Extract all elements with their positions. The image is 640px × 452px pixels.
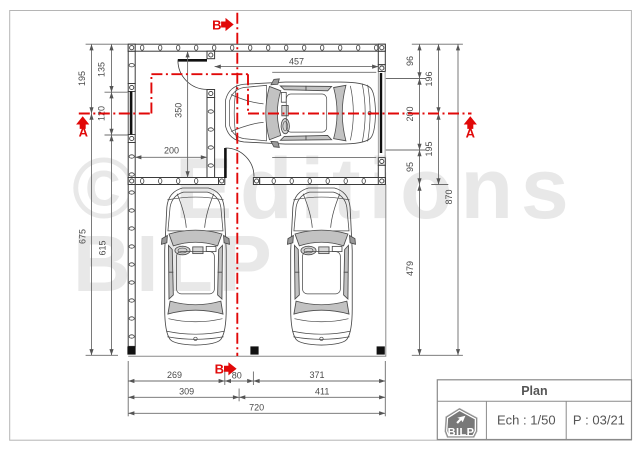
svg-text:615: 615 [98, 240, 108, 255]
svg-text:675: 675 [78, 229, 88, 244]
svg-text:Ech : 1/50: Ech : 1/50 [497, 413, 556, 428]
svg-text:200: 200 [164, 145, 179, 155]
svg-text:196: 196 [424, 71, 434, 86]
svg-text:411: 411 [315, 386, 329, 396]
svg-text:BILP: BILP [448, 427, 475, 439]
svg-text:195: 195 [77, 71, 87, 86]
svg-text:269: 269 [167, 370, 182, 380]
svg-text:80: 80 [232, 371, 242, 381]
svg-text:457: 457 [289, 56, 304, 66]
svg-text:A: A [79, 124, 89, 139]
svg-text:Plan: Plan [521, 384, 547, 398]
svg-text:195: 195 [424, 141, 434, 156]
svg-text:B: B [212, 17, 221, 32]
svg-text:720: 720 [249, 402, 264, 412]
svg-text:309: 309 [179, 386, 194, 396]
svg-text:135: 135 [97, 62, 107, 77]
svg-text:A: A [466, 125, 476, 140]
svg-text:B: B [215, 361, 224, 376]
svg-text:95: 95 [405, 162, 415, 172]
svg-text:96: 96 [405, 56, 415, 66]
svg-text:870: 870 [444, 189, 454, 204]
svg-text:350: 350 [174, 103, 184, 118]
svg-text:P : 03/21: P : 03/21 [573, 413, 625, 428]
svg-text:479: 479 [405, 261, 415, 276]
svg-text:371: 371 [309, 370, 324, 380]
